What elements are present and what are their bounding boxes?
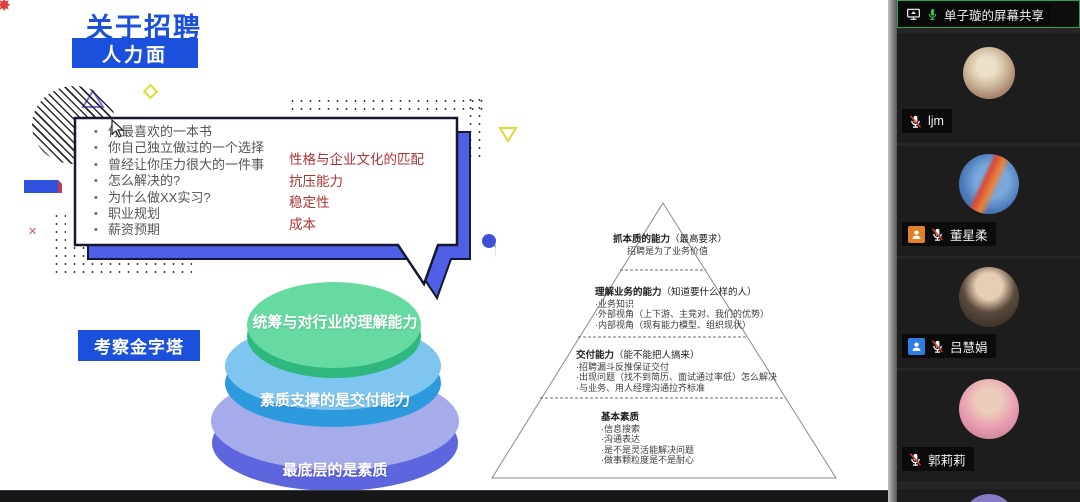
pyramid-level-title: 抓本质的能力（最高要求） <box>613 235 727 246</box>
screen-share-tile[interactable]: 单子璇的屏幕共享 <box>897 0 1080 28</box>
pyramid-badge: 考察金字塔 <box>78 330 200 361</box>
participant-tile[interactable]: ljm <box>897 33 1080 143</box>
participant-tile[interactable]: 郭莉莉 <box>897 371 1080 481</box>
participant-name: ljm <box>928 114 944 128</box>
evaluation-note: 性格与企业文化的匹配 <box>289 149 424 171</box>
person-icon <box>910 228 923 241</box>
person-icon <box>910 340 923 353</box>
evaluation-notes: 性格与企业文化的匹配抗压能力稳定性成本 <box>289 149 424 235</box>
pyramid-level-line: ·信息搜索 <box>601 424 694 435</box>
interview-question: 职业规划 <box>92 206 307 222</box>
panel-resize-handle[interactable] <box>888 0 897 502</box>
pyramid-level: 抓本质的能力（最高要求）招聘是为了业务价值 <box>613 235 727 256</box>
participant-name-bar: 郭莉莉 <box>902 447 974 471</box>
evaluation-note: 抗压能力 <box>289 171 424 193</box>
shared-screen-slide: ✸ 关于招聘 人力面 ✕ <box>0 0 888 502</box>
pyramid-level-line: ·与业务、用人经理沟通拉齐标准 <box>576 383 777 394</box>
pyramid-level-line: ·业务知识 <box>595 299 769 310</box>
avatar <box>963 494 1015 502</box>
pyramid-level: 理解业务的能力（知道要什么样的人）·业务知识·外部视角（上下游、主竞对、我们的优… <box>595 288 769 330</box>
mic-muted-icon <box>908 452 923 467</box>
participant-name: 郭莉莉 <box>928 450 966 469</box>
role-badge-icon <box>908 338 925 355</box>
sparkle-decoration-icon: ✕ <box>28 225 37 238</box>
screen-share-name: 单子璇的屏幕共享 <box>944 5 1044 24</box>
participant-name-bar: ljm <box>902 109 952 133</box>
participant-tile[interactable]: 吕慧娟 <box>897 259 1080 368</box>
participant-name-bar: 董星柔 <box>902 222 996 246</box>
presentation-bottom-bar <box>0 490 888 502</box>
interview-question: 曾经让你压力很大的一件事 <box>92 157 307 173</box>
mouse-cursor <box>110 119 125 139</box>
pyramid-level-title: 理解业务的能力（知道要什么样的人） <box>595 288 769 299</box>
interview-question: 薪资预期 <box>92 222 307 238</box>
pyramid-level-line: ·招聘漏斗反推保证交付 <box>576 362 777 373</box>
pyramid-level: 交付能力（能不能把人搞来）·招聘漏斗反推保证交付·出现问题（找不到简历、面试通过… <box>576 351 777 393</box>
avatar <box>959 379 1019 439</box>
pyramid-level-line: ·出现问题（找不到简历、面试通过率低）怎么解决 <box>576 372 777 383</box>
pyramid-level: 基本素质·信息搜索·沟通表达·是不是灵活能解决问题·做事颗粒度是不是耐心 <box>601 413 694 466</box>
pyramid-level-line: ·做事颗粒度是不是耐心 <box>601 455 694 466</box>
mic-active-icon <box>926 8 939 21</box>
pyramid-level-title: 交付能力（能不能把人搞来） <box>576 351 777 362</box>
evaluation-note: 成本 <box>289 214 424 236</box>
star-decoration-icon: ✸ <box>0 0 11 16</box>
pyramid-level-line: ·是不是灵活能解决问题 <box>601 445 694 456</box>
participants-panel: 单子璇的屏幕共享 ljm 董星柔 吕慧娟 郭莉莉 <box>897 0 1080 502</box>
interview-question-list: 你最喜欢的一本书你自己独立做过的一个选择曾经让你压力很大的一件事怎么解决的?为什… <box>92 124 307 239</box>
mic-muted-icon <box>908 114 923 129</box>
mic-muted-icon <box>930 227 945 242</box>
participant-tile[interactable]: 董星柔 <box>897 146 1080 256</box>
avatar <box>959 154 1019 214</box>
avatar <box>963 47 1015 99</box>
participant-name: 吕慧娟 <box>950 337 988 356</box>
section-badge: 人力面 <box>72 38 198 68</box>
participant-name: 董星柔 <box>950 225 988 244</box>
interview-question: 怎么解决的? <box>92 173 307 189</box>
interview-question: 为什么做XX实习? <box>92 190 307 206</box>
cake-label-middle: 素质支撑的是交付能力 <box>195 389 475 410</box>
pyramid-level-line: ·内部视角（现有能力模型、组织现状） <box>595 320 769 331</box>
pyramid-level-title: 基本素质 <box>601 413 694 424</box>
participant-tile-partial[interactable] <box>897 489 1080 502</box>
participant-name-bar: 吕慧娟 <box>902 334 996 358</box>
mic-muted-icon <box>930 339 945 354</box>
meeting-window: ✸ 关于招聘 人力面 ✕ <box>0 0 1080 502</box>
cake-label-bottom: 最底层的是素质 <box>195 459 475 480</box>
cake-label-top: 统筹与对行业的理解能力 <box>195 311 475 332</box>
interview-question: 你自己独立做过的一个选择 <box>92 140 307 156</box>
role-badge-icon <box>908 226 925 243</box>
pyramid-level-line: ·外部视角（上下游、主竞对、我们的优势） <box>595 309 769 320</box>
evaluation-note: 稳定性 <box>289 192 424 214</box>
pyramid-level-line: 招聘是为了业务价值 <box>627 246 727 257</box>
screen-share-icon <box>906 7 921 21</box>
pyramid-level-line: ·沟通表达 <box>601 434 694 445</box>
avatar <box>959 267 1019 327</box>
screen-share-name-bar: 单子璇的屏幕共享 <box>901 3 1051 25</box>
